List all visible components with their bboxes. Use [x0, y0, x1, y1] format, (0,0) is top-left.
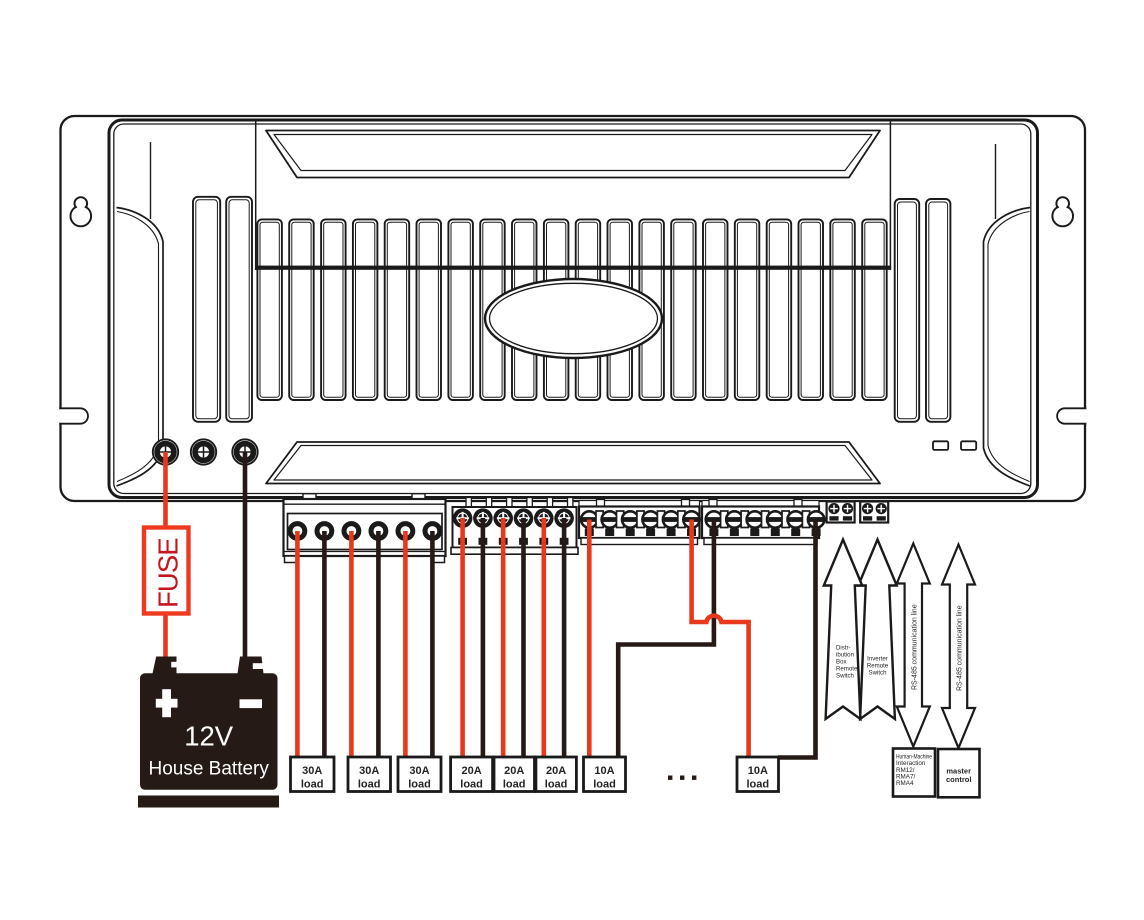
svg-text:10A: 10A — [748, 765, 768, 777]
svg-text:Switch: Switch — [836, 673, 854, 680]
svg-text:20A: 20A — [504, 765, 524, 777]
svg-text:Remote: Remote — [867, 663, 889, 670]
svg-text:FUSE: FUSE — [153, 538, 184, 608]
svg-text:20A: 20A — [546, 765, 566, 777]
svg-text:20A: 20A — [462, 765, 482, 777]
svg-text:load: load — [460, 779, 483, 791]
svg-text:load: load — [593, 779, 616, 791]
svg-text:load: load — [746, 779, 769, 791]
svg-text:30A: 30A — [359, 765, 379, 777]
svg-text:RS-485 communication line: RS-485 communication line — [911, 604, 918, 690]
svg-text:load: load — [408, 779, 431, 791]
svg-text:Inverter: Inverter — [867, 656, 888, 663]
svg-text:ibution: ibution — [836, 652, 854, 659]
svg-text:load: load — [545, 779, 568, 791]
svg-text:RS-485 communication line: RS-485 communication line — [957, 605, 964, 691]
svg-text:Box: Box — [836, 659, 847, 666]
svg-text:House Battery: House Battery — [148, 759, 269, 780]
svg-text:Distr-: Distr- — [836, 645, 851, 652]
svg-text:10A: 10A — [594, 765, 614, 777]
svg-text:RMA4: RMA4 — [896, 780, 914, 787]
svg-text:30A: 30A — [409, 765, 429, 777]
svg-text:load: load — [301, 779, 324, 791]
svg-text:Remote: Remote — [836, 666, 858, 673]
svg-text:30A: 30A — [302, 765, 322, 777]
svg-text:load: load — [358, 779, 381, 791]
svg-text:12V: 12V — [184, 721, 234, 752]
svg-text:load: load — [503, 779, 526, 791]
svg-text:Switch: Switch — [869, 670, 887, 677]
svg-text:control: control — [946, 775, 971, 784]
